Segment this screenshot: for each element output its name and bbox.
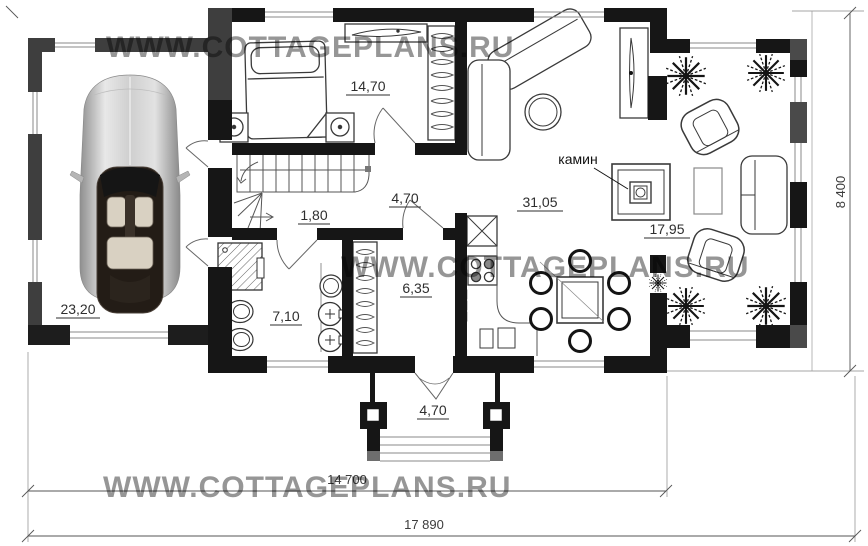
garage-bottom-wall — [28, 325, 208, 345]
window — [33, 240, 37, 282]
plant-icon — [667, 287, 705, 325]
window — [795, 228, 801, 282]
kitchen — [456, 216, 537, 356]
floor-plan-canvas: 23,20 14,70 1,80 4,70 31,05 17,95 7,10 6… — [0, 0, 868, 546]
right-wall — [790, 39, 807, 348]
room-area-garage: 23,20 — [60, 301, 95, 317]
dim-17890: 17 890 — [404, 517, 444, 532]
coffee-table — [525, 94, 561, 130]
window — [534, 361, 604, 367]
window — [795, 77, 801, 102]
window — [265, 12, 333, 17]
window — [55, 43, 95, 47]
door-garage-2 — [186, 239, 208, 266]
watermark-bottom: WWW.COTTAGEPLANS.RU — [103, 471, 511, 505]
washing-machine-icon — [319, 303, 347, 326]
window — [690, 43, 756, 48]
room-area-stairs: 1,80 — [300, 207, 327, 223]
watermark-middle: WWW.COTTAGEPLANS.RU — [341, 251, 749, 285]
window — [33, 92, 37, 134]
window — [267, 361, 328, 367]
room-area-lounge: 17,95 — [649, 221, 684, 237]
lounge-sofa — [741, 156, 787, 234]
fridge — [467, 216, 497, 246]
garage-door — [70, 332, 168, 338]
laundry-tub-icon — [319, 329, 347, 352]
nightstand-right — [326, 113, 354, 142]
porch-steps — [380, 437, 490, 461]
room-area-hall: 4,70 — [391, 190, 418, 206]
door-garage-1 — [186, 141, 208, 167]
corner-sofa — [468, 5, 595, 160]
window — [795, 143, 801, 182]
room-area-bathroom: 7,10 — [272, 308, 299, 324]
car — [70, 75, 190, 313]
room-area-living: 31,05 — [522, 194, 557, 210]
lounge-table — [694, 168, 722, 214]
room-area-bedroom: 14,70 — [350, 78, 385, 94]
bottom-wall — [232, 356, 650, 373]
watermark-top: WWW.COTTAGEPLANS.RU — [106, 31, 514, 65]
armchair-top — [676, 94, 744, 159]
plant-icon — [746, 286, 786, 326]
door-bedroom — [374, 108, 415, 143]
tv-cabinet — [620, 28, 648, 118]
porch-column — [483, 402, 510, 429]
porch-column — [360, 402, 387, 429]
door-entrance — [415, 373, 453, 399]
fireplace-label: камин — [558, 151, 597, 167]
plant-icon — [747, 54, 785, 92]
fireplace — [612, 164, 670, 220]
plant-icon — [666, 56, 706, 96]
door-bathroom — [277, 240, 317, 269]
window — [690, 331, 756, 340]
dim-8400: 8 400 — [833, 176, 848, 209]
room-area-porch: 4,70 — [419, 402, 446, 418]
